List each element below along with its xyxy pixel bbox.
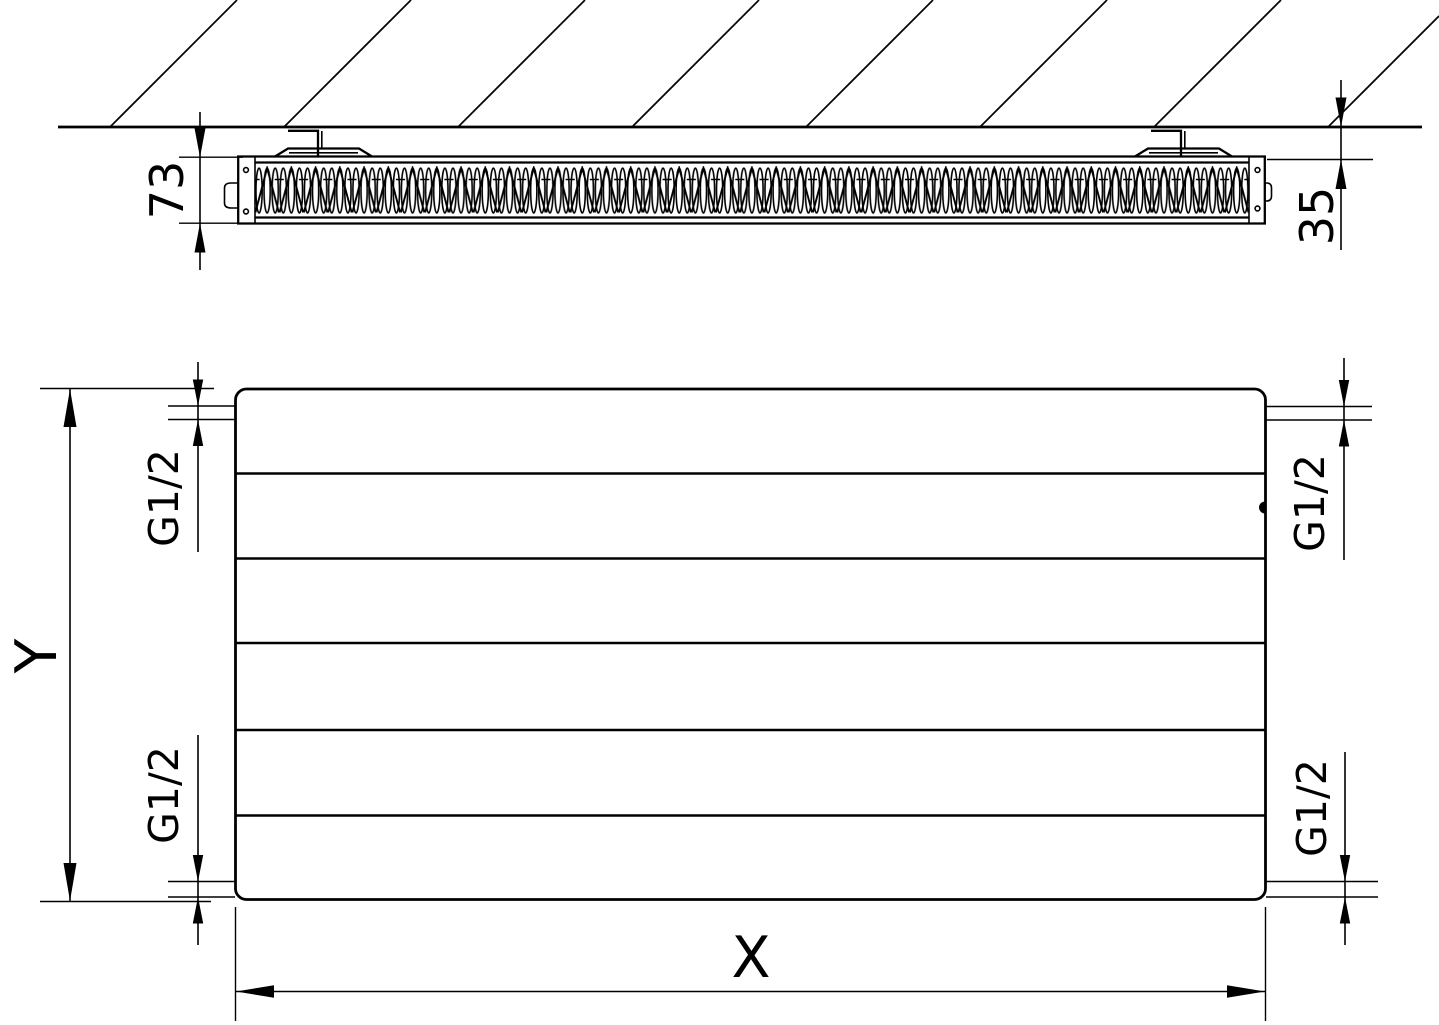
mounting-bracket-right: [1135, 131, 1232, 157]
convector-fins: [255, 166, 1249, 215]
connection-label: G1/2: [1286, 454, 1334, 552]
dimension-depth-73: 73: [140, 112, 243, 270]
radiator-technical-drawing: 73 35 Y X: [0, 0, 1439, 1025]
arrow-down-icon: [193, 380, 203, 407]
right-cap-screw-bottom: [1255, 206, 1260, 211]
arrow-up-icon: [1339, 420, 1349, 447]
top-view-right-nozzle: [1265, 183, 1272, 201]
connection-g12-bottom-right: G1/2: [1266, 752, 1378, 945]
wall-section: [58, 0, 1439, 127]
side-vent-plug: [1259, 502, 1265, 514]
arrow-down-icon: [195, 128, 206, 157]
radiator-front-view: [236, 389, 1266, 900]
connection-g12-bottom-left: G1/2: [140, 735, 235, 945]
arrow-down-icon: [193, 855, 203, 882]
radiator-top-view: [225, 131, 1272, 224]
arrow-down-icon: [1339, 380, 1349, 407]
arrow-down-icon: [1340, 855, 1350, 882]
arrow-up-icon: [64, 389, 77, 427]
arrow-up-icon: [193, 420, 203, 447]
arrow-up-icon: [1336, 160, 1347, 190]
arrow-right-icon: [1227, 985, 1265, 998]
height-dimension-label: Y: [4, 638, 70, 674]
arrow-left-icon: [236, 985, 274, 998]
connection-g12-top-right: G1/2: [1266, 358, 1372, 560]
connection-label: G1/2: [140, 449, 188, 547]
connection-label: G1/2: [1288, 759, 1336, 857]
arrow-down-icon: [1336, 98, 1347, 128]
wall-clearance-dimension-label: 35: [1290, 187, 1344, 246]
width-dimension-label: X: [731, 925, 770, 991]
connection-g12-top-left: G1/2: [140, 362, 235, 552]
arrow-down-icon: [64, 863, 77, 901]
top-view-left-nozzle: [225, 183, 239, 208]
connection-label: G1/2: [140, 746, 188, 844]
arrow-up-icon: [195, 223, 206, 252]
dimension-wall-clearance-35: 35: [1267, 80, 1373, 250]
drawing-canvas: 73 35 Y X: [0, 0, 1439, 1025]
left-cap-screw-bottom: [244, 209, 249, 214]
depth-dimension-label: 73: [140, 161, 194, 220]
dimension-width-X: X: [236, 907, 1266, 1021]
panel-grooves: [236, 474, 1265, 816]
left-cap-screw-top: [244, 168, 249, 173]
wall-hatching: [110, 0, 1439, 127]
mounting-bracket-left: [275, 131, 372, 157]
arrow-up-icon: [1340, 897, 1350, 924]
right-cap-screw-top: [1255, 168, 1260, 173]
